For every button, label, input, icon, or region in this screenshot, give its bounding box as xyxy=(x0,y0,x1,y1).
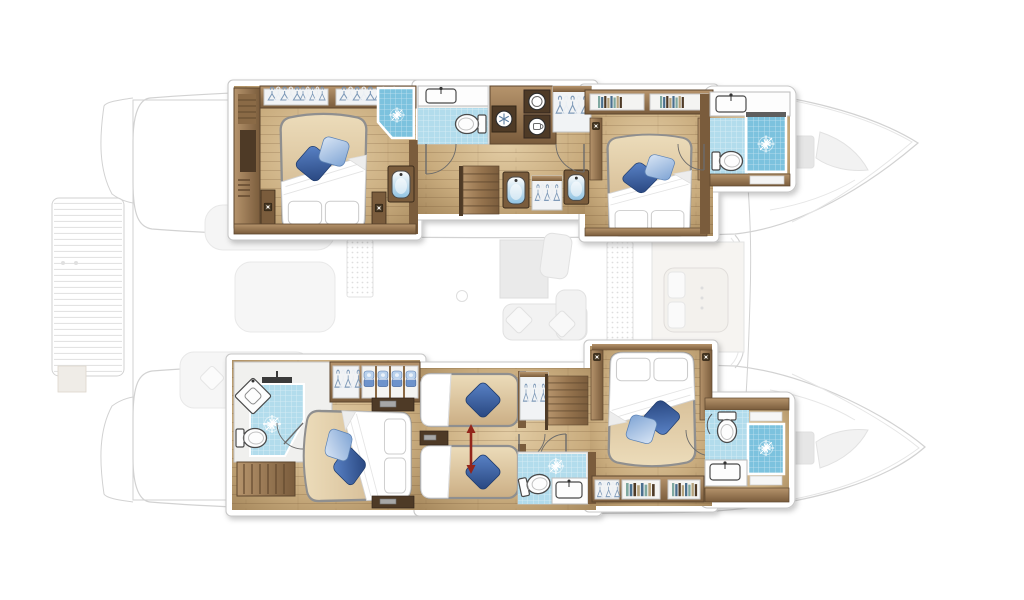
toilet-icon xyxy=(236,429,267,448)
toilet-icon xyxy=(456,115,487,134)
washbasin-unit-icon xyxy=(388,166,414,202)
reading-lamp-icon xyxy=(592,122,599,129)
shower-cubicle xyxy=(746,112,786,172)
stairs-down xyxy=(545,374,588,430)
bulkhead xyxy=(700,94,710,234)
reading-lamp-icon xyxy=(593,353,600,360)
ghost-hatch-grid-2 xyxy=(347,240,373,297)
ghost-stern-step xyxy=(58,366,86,392)
double-bed xyxy=(281,114,367,230)
freezer-icon xyxy=(492,106,516,132)
starboard-hull-section xyxy=(232,344,789,510)
washbasin-unit-icon xyxy=(564,170,589,204)
wardrobe-cubbies xyxy=(330,362,420,402)
ghost-cockpit-lounge xyxy=(235,262,335,332)
toilet-icon xyxy=(718,412,737,443)
foot-locker xyxy=(585,228,707,236)
towel-icon xyxy=(364,371,374,387)
ghost-hatch-grid-1 xyxy=(607,242,633,347)
bath-top-trim xyxy=(705,398,789,410)
bookshelf-band xyxy=(592,476,704,502)
foot-locker xyxy=(234,224,416,234)
reading-lamp-icon xyxy=(264,203,272,211)
floor-plan-canvas xyxy=(0,0,1024,600)
stbd-aft-cabin xyxy=(234,362,420,508)
washbasin-unit-icon xyxy=(503,172,529,208)
port-hull-section xyxy=(234,86,790,236)
single-bed xyxy=(421,446,518,498)
double-bed xyxy=(304,411,411,501)
shower-cubicle xyxy=(748,412,784,485)
teak-bench xyxy=(237,462,295,496)
head-trim xyxy=(592,344,712,350)
yacht-floor-plan xyxy=(0,0,1024,600)
stbd-mid-bathroom xyxy=(518,452,596,504)
ghost-drink-holder xyxy=(457,291,468,302)
toilet-icon xyxy=(712,152,743,171)
dryer-icon xyxy=(524,115,550,138)
bath-floor-trim xyxy=(705,488,789,502)
port-mid-bathroom xyxy=(418,86,492,144)
washer-icon xyxy=(524,90,550,113)
ghost-forward-cabin xyxy=(652,242,744,352)
stairs-down xyxy=(459,166,499,216)
locker-low xyxy=(532,176,562,210)
single-bed xyxy=(421,374,518,426)
double-bed xyxy=(609,353,696,466)
hanging-locker xyxy=(520,372,548,420)
